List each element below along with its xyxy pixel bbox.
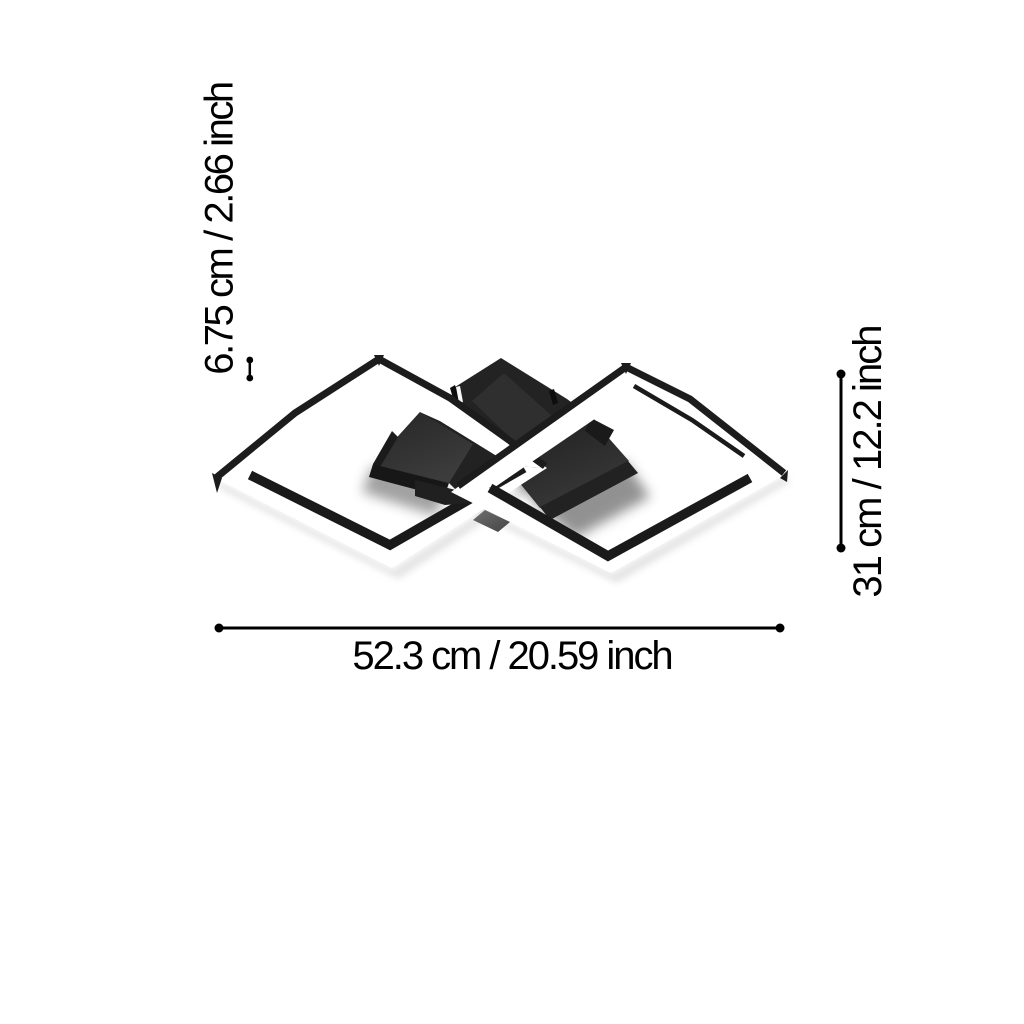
svg-text:6.75 cm / 2.66 inch: 6.75 cm / 2.66 inch <box>198 83 242 375</box>
svg-text:31 cm / 12.2 inch: 31 cm / 12.2 inch <box>846 326 890 597</box>
svg-text:52.3 cm / 20.59 inch: 52.3 cm / 20.59 inch <box>352 634 671 678</box>
